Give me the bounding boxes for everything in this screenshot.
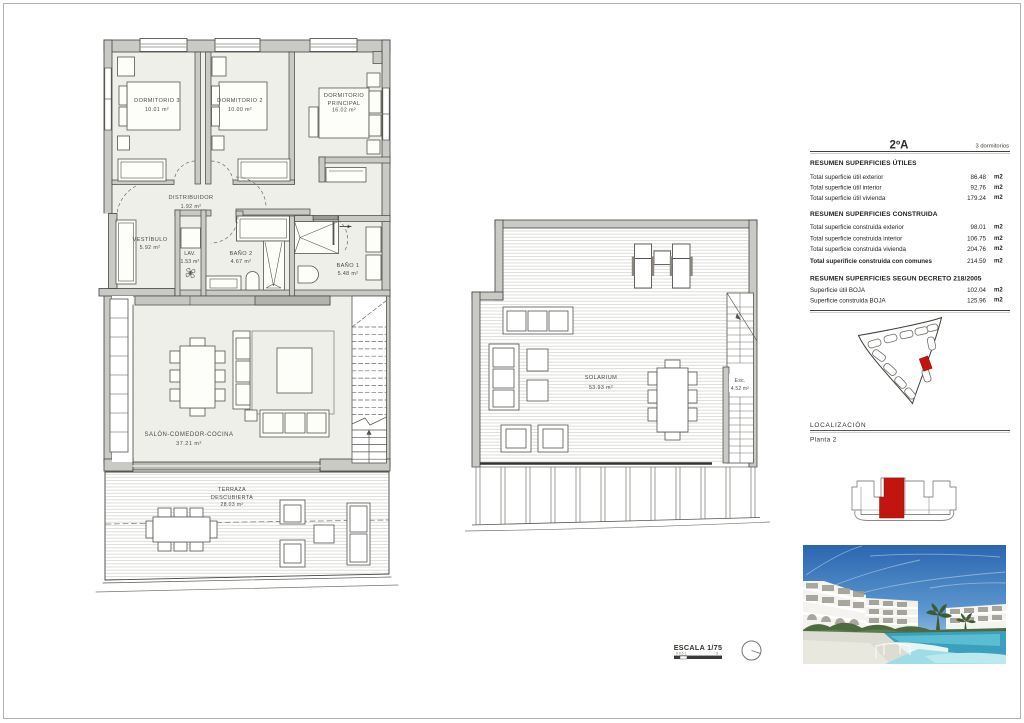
svg-text:BAÑO 2: BAÑO 2 bbox=[230, 250, 253, 257]
svg-text:1.53 m²: 1.53 m² bbox=[181, 259, 200, 265]
svg-text:TERRAZA: TERRAZA bbox=[218, 487, 246, 493]
svg-text:102.04: 102.04 bbox=[967, 287, 986, 294]
svg-text:Planta 2: Planta 2 bbox=[810, 437, 837, 444]
svg-text:Total superficie útil interior: Total superficie útil interior bbox=[810, 184, 882, 191]
svg-text:m2: m2 bbox=[994, 298, 1003, 304]
svg-text:3: 3 bbox=[716, 652, 718, 656]
svg-text:4.67 m²: 4.67 m² bbox=[231, 259, 252, 265]
svg-text:DISTRIBUIDOR: DISTRIBUIDOR bbox=[169, 195, 214, 201]
svg-text:PRINCIPAL: PRINCIPAL bbox=[328, 101, 361, 107]
svg-text:Superficie útil BOJA: Superficie útil BOJA bbox=[810, 287, 866, 294]
svg-text:125.96: 125.96 bbox=[967, 297, 986, 304]
svg-text:86.48: 86.48 bbox=[971, 174, 987, 181]
svg-text:Total superificie construida c: Total superificie construida con comunes bbox=[810, 258, 932, 265]
svg-text:5.48 m²: 5.48 m² bbox=[338, 271, 359, 277]
svg-text:Total superficie construida in: Total superficie construida interior bbox=[810, 235, 902, 242]
svg-text:SOLARIUM: SOLARIUM bbox=[585, 375, 617, 381]
svg-text:53.93 m²: 53.93 m² bbox=[589, 385, 613, 391]
svg-text:106.75: 106.75 bbox=[967, 235, 986, 242]
svg-text:m2: m2 bbox=[994, 259, 1003, 265]
svg-text:16.02 m²: 16.02 m² bbox=[332, 108, 356, 114]
svg-text:m2: m2 bbox=[994, 236, 1003, 242]
svg-text:Esc.: Esc. bbox=[735, 378, 746, 384]
svg-text:DORMITORIO: DORMITORIO bbox=[324, 93, 365, 99]
svg-text:m2: m2 bbox=[994, 185, 1003, 191]
svg-text:10.01 m²: 10.01 m² bbox=[145, 107, 169, 113]
svg-text:28.03 m²: 28.03 m² bbox=[221, 502, 244, 508]
svg-text:1.92 m²: 1.92 m² bbox=[181, 204, 202, 210]
svg-text:LOCALIZACIÓN: LOCALIZACIÓN bbox=[810, 420, 866, 429]
svg-text:92.76: 92.76 bbox=[971, 184, 987, 191]
svg-text:Total superficie útil exterior: Total superficie útil exterior bbox=[810, 174, 883, 181]
svg-text:DORMITORIO 2: DORMITORIO 2 bbox=[217, 98, 263, 104]
svg-text:Superficie construida BOJA: Superficie construida BOJA bbox=[810, 297, 887, 304]
svg-text:Total superficie útil vivienda: Total superficie útil vivienda bbox=[810, 195, 886, 202]
svg-text:214.59: 214.59 bbox=[967, 258, 986, 265]
svg-text:204.76: 204.76 bbox=[967, 246, 986, 253]
svg-text:Total superficie construida vi: Total superficie construida vivienda bbox=[810, 246, 907, 253]
svg-text:2ºA: 2ºA bbox=[890, 140, 909, 152]
svg-text:RESUMEN SUPERFICIES SEGUN DECR: RESUMEN SUPERFICIES SEGUN DECRETO 218/20… bbox=[810, 276, 982, 283]
svg-text:m2: m2 bbox=[994, 287, 1003, 293]
svg-text:5.92 m²: 5.92 m² bbox=[140, 245, 161, 251]
svg-text:98.01: 98.01 bbox=[971, 224, 987, 231]
svg-text:4.52 m²: 4.52 m² bbox=[731, 386, 749, 392]
svg-text:0 0.5 1: 0 0.5 1 bbox=[676, 652, 686, 656]
svg-text:m2: m2 bbox=[994, 174, 1003, 180]
svg-text:m2: m2 bbox=[994, 224, 1003, 230]
svg-text:SALÓN-COMEDOR-COCINA: SALÓN-COMEDOR-COCINA bbox=[144, 431, 233, 438]
svg-text:Total superficie construida ex: Total superficie construida exterior bbox=[810, 224, 904, 231]
svg-text:DORMITORIO 3: DORMITORIO 3 bbox=[134, 98, 180, 104]
svg-text:RESUMEN SUPERFICIES CONSTRUIDA: RESUMEN SUPERFICIES CONSTRUIDA bbox=[810, 211, 938, 218]
svg-text:m2: m2 bbox=[994, 195, 1003, 201]
svg-text:3 dormitorios: 3 dormitorios bbox=[975, 144, 1009, 150]
svg-text:179.24: 179.24 bbox=[967, 195, 986, 202]
svg-text:m2: m2 bbox=[994, 246, 1003, 252]
svg-text:37.21 m²: 37.21 m² bbox=[176, 441, 202, 447]
svg-text:DESCUBIERTA: DESCUBIERTA bbox=[211, 495, 253, 501]
svg-text:10.00 m²: 10.00 m² bbox=[228, 107, 252, 113]
svg-text:BAÑO 1: BAÑO 1 bbox=[337, 262, 360, 269]
svg-text:RESUMEN SUPERFICIES ÚTILES: RESUMEN SUPERFICIES ÚTILES bbox=[810, 158, 917, 167]
svg-text:LAV.: LAV. bbox=[184, 251, 196, 257]
svg-text:VESTÍBULO: VESTÍBULO bbox=[133, 236, 168, 243]
